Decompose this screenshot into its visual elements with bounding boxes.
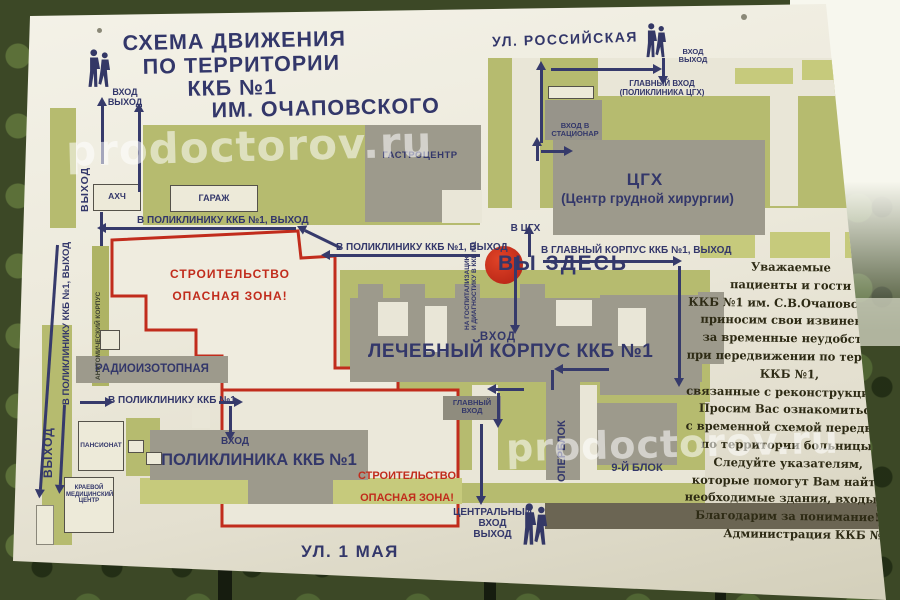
pedestrians-icon (643, 22, 669, 60)
exit-text: ВЫХОД (672, 56, 714, 64)
building-cgh-fullname: (Центр грудной хирургии) (535, 191, 760, 206)
small-structure (128, 440, 144, 453)
entrance-text: ВХОД (96, 87, 154, 97)
arrow-down-central-entrance (480, 424, 483, 496)
to-cgh-label: В ЦГХ (503, 223, 548, 234)
cgh-main-entrance-label: ГЛАВНЫЙ ВХОД (ПОЛИКЛИНИКА ЦГХ) (613, 80, 711, 98)
hospitalization-line1: НА ГОСПИТАЛИЗАЦИЮ (464, 241, 471, 330)
construction-text-line2: ОПАСНАЯ ЗОНА! (150, 290, 310, 303)
screw-dot (741, 14, 747, 20)
bottom-left-exit-label: ВЫХОД (42, 420, 55, 478)
building-cgh-abbr: ЦГХ (615, 170, 675, 189)
map-title: СХЕМА ДВИЖЕНИЯ ПО ТЕРРИТОРИИ ККБ №1 ИМ. … (117, 25, 439, 128)
arrow-right-cgh-top (551, 68, 653, 71)
construction-text2-line2: ОПАСНАЯ ЗОНА! (352, 492, 462, 504)
stationar-entrance-label: ВХОД В СТАЦИОНАР (544, 122, 606, 139)
arrow-right-stationar (541, 150, 564, 153)
arrow-shaft-mid-bottom (551, 370, 554, 390)
main-entrance-label: ГЛАВНЫЙ ВХОД (445, 399, 499, 416)
watermark-text: prodoctorov.ru (65, 117, 433, 176)
screw-dot (97, 28, 102, 33)
notice-signature: Администрация ККБ №1 (684, 526, 890, 547)
small-structure (36, 505, 54, 545)
mid-entrance-label: ВХОД (472, 331, 524, 344)
exit-text: ВЫХОД (450, 529, 535, 540)
to-polyclinic-upper-label: В ПОЛИКЛИНИКУ ККБ №1, ВЫХОД (137, 215, 309, 226)
fence-post (218, 570, 232, 600)
watermark-text: prodoctorov.ru (505, 418, 839, 471)
building-regional-med-center-label: КРАЕВОЙ МЕДИЦИНСКИЙ ЦЕНТР (66, 485, 112, 505)
construction-text2-line1: СТРОИТЕЛЬСТВО (352, 470, 462, 482)
building-courtyard (556, 300, 592, 326)
arrow-down-polyclinic-entrance (229, 406, 232, 432)
arrow-down-cgh-entrance (662, 58, 665, 76)
building-cgh-annex (548, 86, 594, 99)
building-pansionat-label: ПАНСИОНАТ (78, 442, 124, 449)
exit-text: ВЫХОД (96, 97, 154, 107)
small-structure (100, 330, 120, 350)
building-courtyard (378, 302, 408, 336)
arrow-left-main-entrance (496, 388, 524, 391)
building-med-corpus-label: ЛЕЧЕБНЫЙ КОРПУС ККБ №1 (368, 341, 638, 362)
to-polyclinic-mid-label: В ПОЛИКЛИНИКУ ККБ №1, ВЫХОД (336, 242, 508, 253)
arrow-left-to-polyclinic-upper (106, 227, 296, 230)
entrance-text: ВХОД (450, 518, 535, 529)
top-left-entrance-exit-label: ВХОД ВЫХОД (96, 87, 154, 107)
hospitalization-route-label: НА ГОСПИТАЛИЗАЦИЮ И ДИАГНОСТИКУ В ККБ №1 (464, 241, 479, 330)
to-polyclinic-lower-label: В ПОЛИКЛИНИКУ ККБ №1 (108, 395, 236, 406)
street-1-maya: УЛ. 1 МАЯ (300, 542, 400, 561)
building-garage-label: ГАРАЖ (170, 193, 258, 203)
central-entrance-label: ЦЕНТРАЛЬНЫЙ ВХОД ВЫХОД (450, 507, 535, 541)
polyclinic-entrance-label: ВХОД (195, 436, 275, 447)
arrow-up-cgh-courtyard (540, 70, 543, 143)
small-structure (192, 408, 210, 428)
arrow-left-mid-bottom (563, 368, 609, 371)
building-anatomy-label: АНАТОМИЧЕСКИЙ КОРПУС (95, 248, 102, 380)
pedestrians-icon (84, 48, 114, 90)
arrow-down-right-route (678, 266, 681, 378)
construction-text-line1: СТРОИТЕЛЬСТВО (150, 268, 310, 281)
hospitalization-line2: И ДИАГНОСТИКУ В ККБ №1 (471, 241, 478, 330)
building-polyclinic-label: ПОЛИКЛИНИКА ККБ №1 (153, 451, 365, 469)
cgh-polyclinic-text: (ПОЛИКЛИНИКА ЦГХ) (613, 89, 711, 98)
building-ahch-label: АХЧ (93, 192, 141, 202)
sign-board: ГАСТРОЦЕНТР АХЧ ГАРАЖ ЦГХ (Центр грудной… (0, 0, 900, 600)
central-text: ЦЕНТРАЛЬНЫЙ (450, 507, 535, 518)
top-right-entrance-exit-label: ВХОД ВЫХОД (672, 48, 714, 65)
fence-post (484, 582, 496, 600)
map-title-line2: ПО ТЕРРИТОРИИ (143, 51, 327, 79)
building-notch (442, 190, 482, 223)
arrow-left-to-polyclinic-mid (330, 254, 480, 257)
to-main-corpus-label: В ГЛАВНЫЙ КОРПУС ККБ №1, ВЫХОД (541, 245, 731, 256)
fence-post (715, 592, 726, 600)
left-route-label: В ПОЛИКЛИНИКУ ККБ №1, ВЫХОД (62, 240, 73, 405)
building-polyclinic-step (248, 478, 333, 504)
arrow-up-stationar (536, 146, 539, 161)
arrow-right-to-polyclinic-entry (80, 401, 105, 404)
